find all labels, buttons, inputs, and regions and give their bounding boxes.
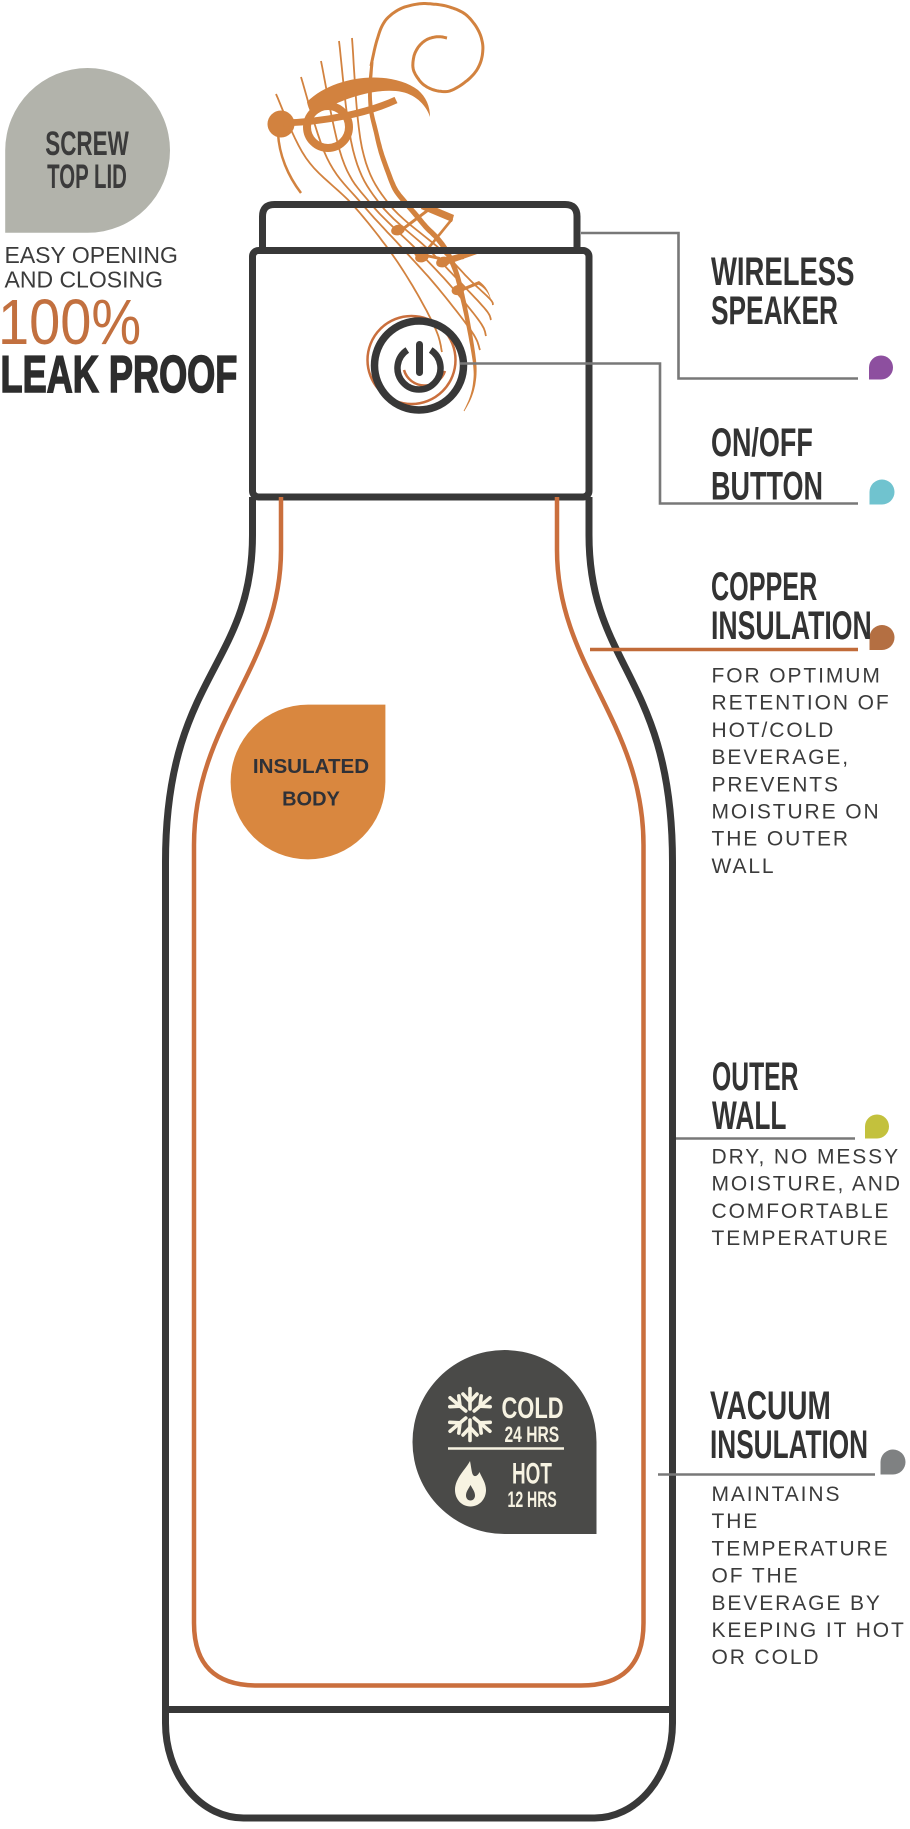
svg-text:FOR OPTIMUM: FOR OPTIMUM [712,665,882,688]
svg-text:12 HRS: 12 HRS [508,1487,557,1512]
svg-text:ON/OFF: ON/OFF [711,421,813,466]
svg-text:HOT: HOT [512,1457,552,1491]
svg-text:KEEPING IT HOT: KEEPING IT HOT [712,1619,906,1642]
svg-text:EASY OPENING: EASY OPENING [5,242,178,268]
svg-text:INSULATED: INSULATED [253,756,369,778]
svg-text:24 HRS: 24 HRS [505,1424,560,1448]
svg-text:OR COLD: OR COLD [712,1646,821,1669]
svg-text:INSULATION: INSULATION [710,1423,868,1468]
svg-text:SPEAKER: SPEAKER [711,289,838,334]
svg-text:OF THE: OF THE [712,1565,800,1588]
svg-text:THE OUTER: THE OUTER [712,828,850,851]
svg-text:COMFORTABLE: COMFORTABLE [712,1200,891,1223]
svg-text:BODY: BODY [282,789,340,811]
svg-text:WALL: WALL [712,1094,786,1139]
svg-text:HOT/COLD: HOT/COLD [712,719,836,742]
svg-text:TEMPERATURE: TEMPERATURE [712,1227,890,1250]
svg-text:COLD: COLD [502,1391,564,1425]
svg-text:TOP LID: TOP LID [47,158,127,196]
svg-text:THE: THE [712,1510,760,1533]
svg-text:BUTTON: BUTTON [711,464,823,509]
svg-text:TEMPERATURE: TEMPERATURE [712,1537,890,1560]
svg-text:MAINTAINS: MAINTAINS [712,1483,842,1506]
svg-text:DRY, NO MESSY: DRY, NO MESSY [712,1146,900,1169]
svg-text:BEVERAGE,: BEVERAGE, [712,746,850,769]
svg-text:MOISTURE ON: MOISTURE ON [712,801,881,824]
svg-text:PREVENTS: PREVENTS [712,773,840,796]
svg-text:LEAK PROOF: LEAK PROOF [1,346,238,404]
svg-text:MOISTURE, AND: MOISTURE, AND [712,1173,902,1196]
svg-text:WALL: WALL [712,855,776,878]
svg-text:RETENTION OF: RETENTION OF [712,692,891,715]
svg-text:INSULATION: INSULATION [711,604,872,649]
svg-text:BEVERAGE BY: BEVERAGE BY [712,1592,882,1615]
